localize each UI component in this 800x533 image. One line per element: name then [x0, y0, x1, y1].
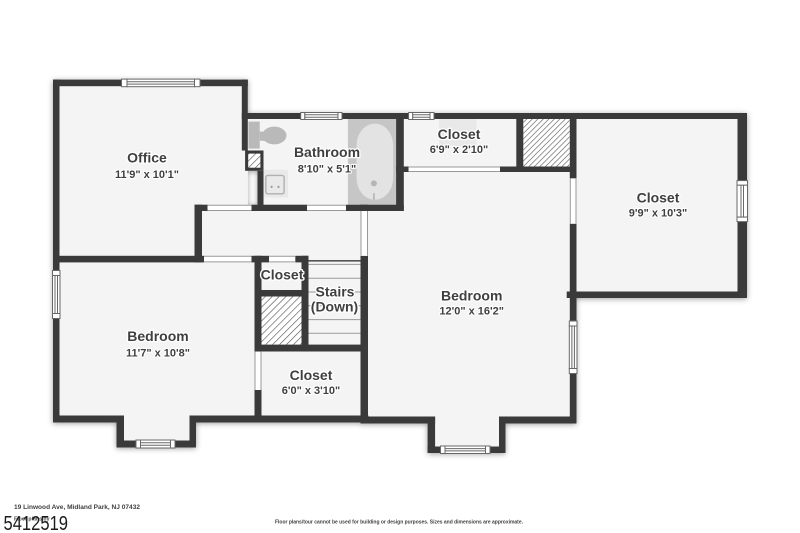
svg-text:5412519: 5412519 [4, 513, 69, 533]
svg-text:19 Linwood Ave, Midland Park,: 19 Linwood Ave, Midland Park, NJ 07432 [14, 504, 140, 511]
svg-text:Closet: Closet [637, 190, 680, 206]
svg-text:12'0" x 16'2": 12'0" x 16'2" [439, 306, 504, 318]
svg-text:Floor plans/tour cannot be use: Floor plans/tour cannot be used for buil… [275, 519, 524, 525]
svg-text:Closet: Closet [290, 367, 333, 383]
svg-text:9'9" x 10'3": 9'9" x 10'3" [629, 208, 687, 220]
svg-text:Closet: Closet [261, 267, 304, 283]
svg-text:11'7" x 10'8": 11'7" x 10'8" [126, 348, 190, 360]
svg-text:8'10" x 5'1": 8'10" x 5'1" [298, 164, 356, 176]
svg-text:Bedroom: Bedroom [127, 328, 188, 344]
svg-text:Office: Office [127, 150, 167, 166]
svg-text:6'0" x 3'10": 6'0" x 3'10" [282, 385, 340, 397]
svg-text:Bedroom: Bedroom [441, 288, 502, 304]
svg-text:Bathroom: Bathroom [294, 144, 360, 160]
svg-text:Stairs: Stairs [316, 284, 355, 300]
svg-text:11'9" x 10'1": 11'9" x 10'1" [115, 169, 179, 181]
svg-text:(Down): (Down) [311, 299, 358, 315]
svg-text:6'9" x 2'10": 6'9" x 2'10" [430, 144, 488, 156]
svg-text:Closet: Closet [438, 126, 481, 142]
